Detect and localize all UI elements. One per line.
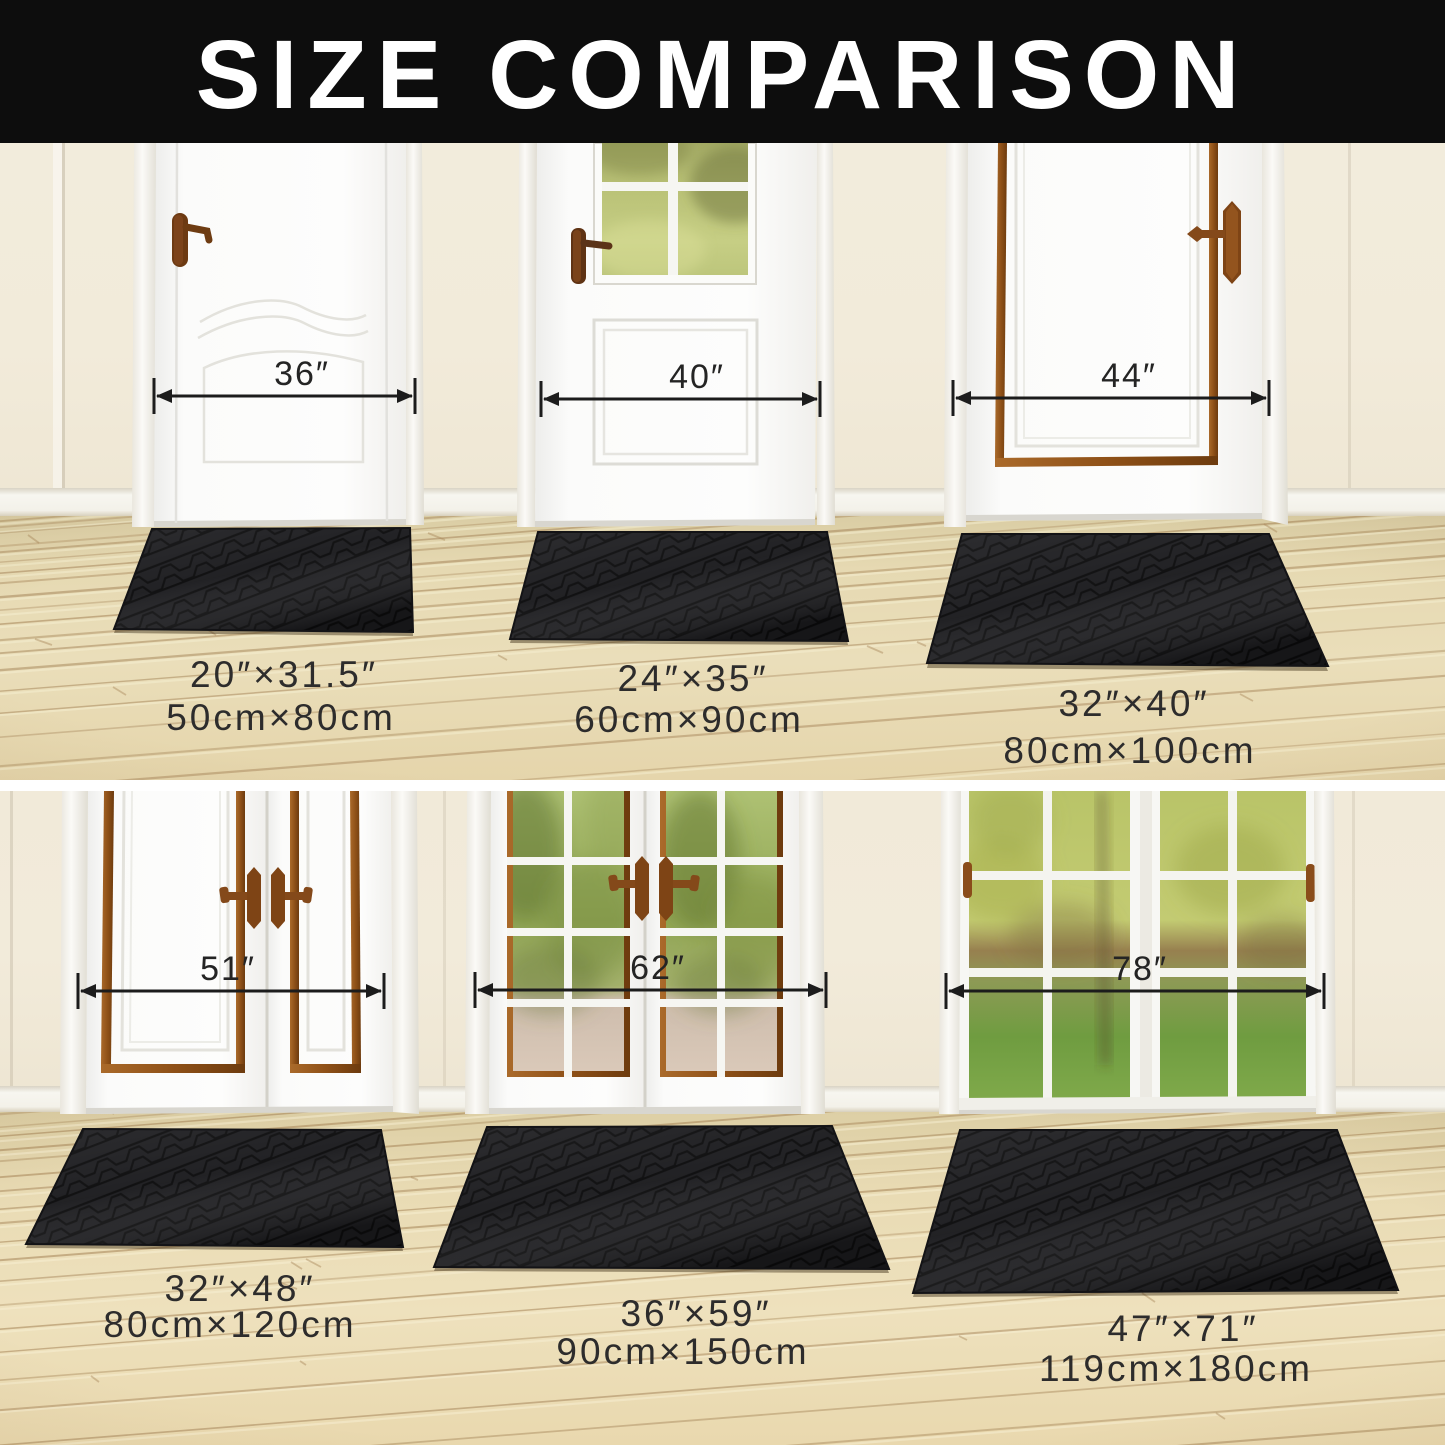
svg-text:62″: 62″	[630, 949, 686, 987]
svg-text:40″: 40″	[669, 358, 725, 396]
svg-text:36″: 36″	[274, 355, 330, 393]
svg-text:78″: 78″	[1112, 950, 1168, 988]
svg-text:51″: 51″	[200, 950, 256, 988]
svg-text:44″: 44″	[1101, 357, 1157, 395]
